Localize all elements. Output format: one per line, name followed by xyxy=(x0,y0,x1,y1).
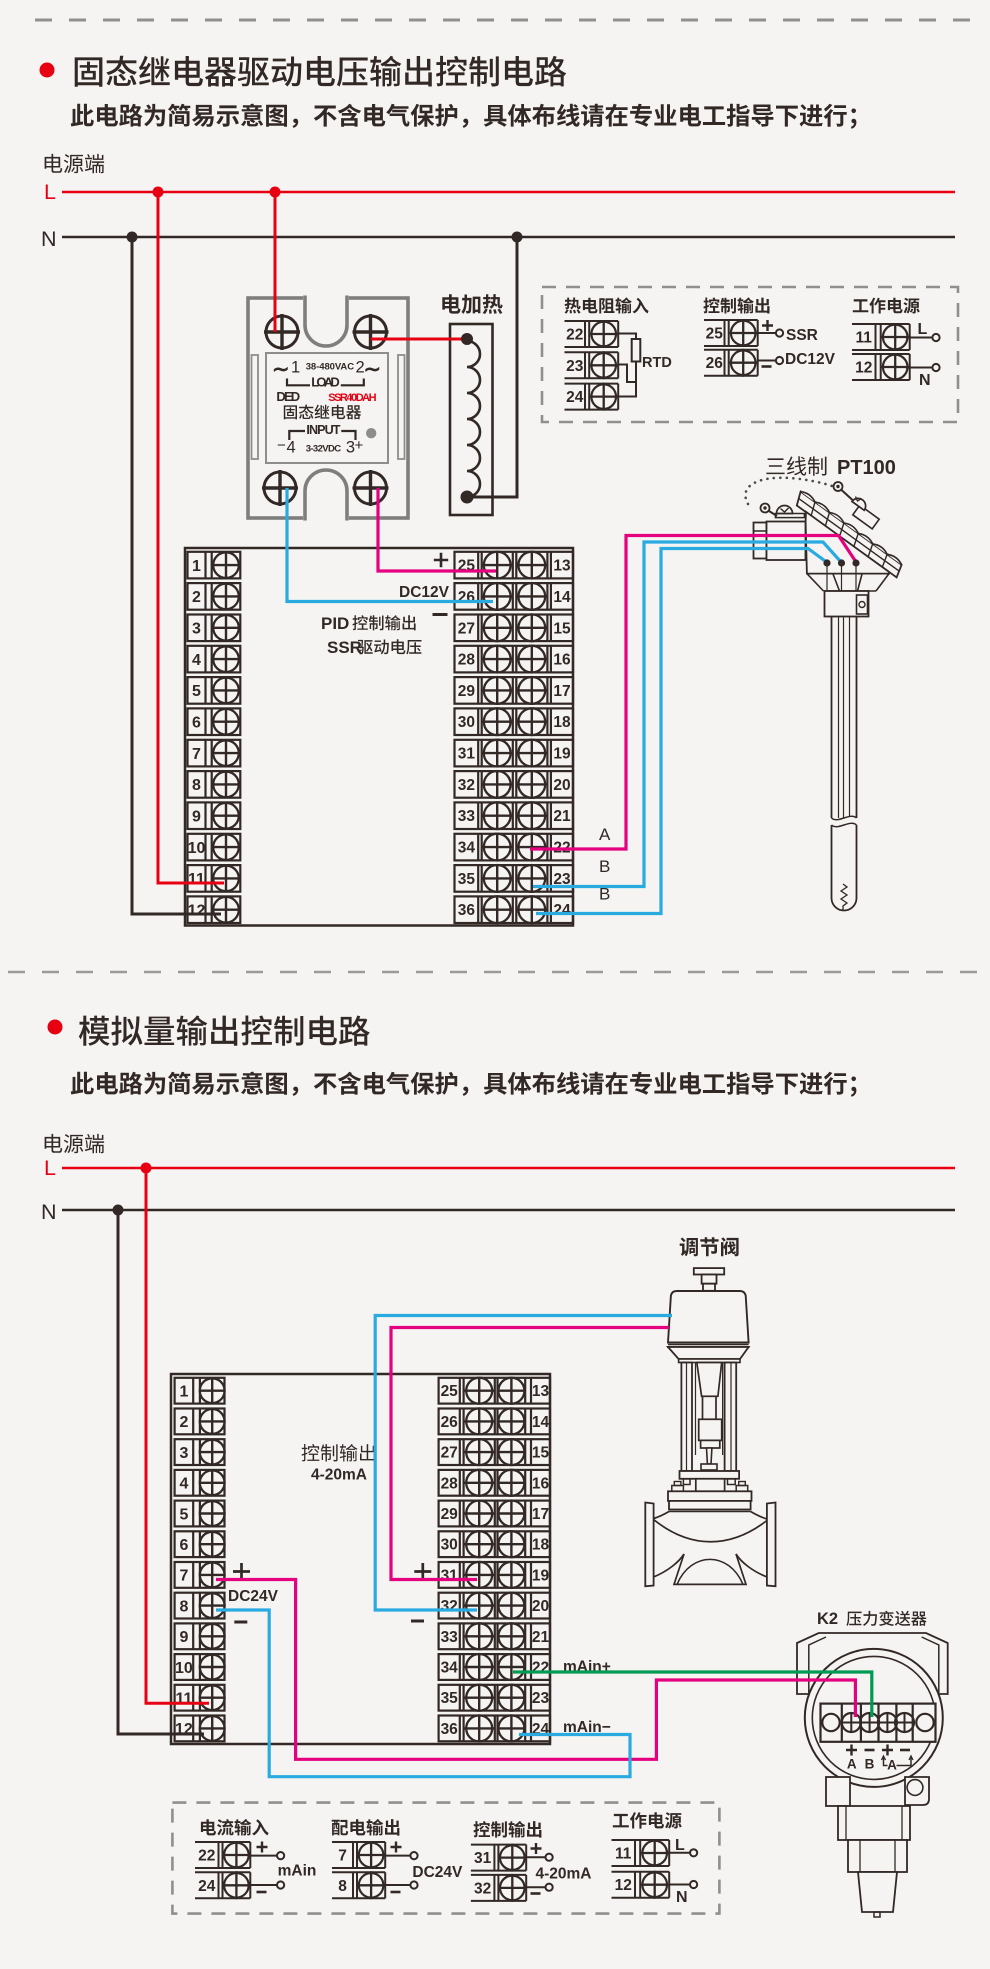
svg-text:19: 19 xyxy=(553,746,571,763)
svg-text:12: 12 xyxy=(615,1877,632,1894)
svg-text:22: 22 xyxy=(566,327,583,344)
svg-text:36: 36 xyxy=(441,1721,459,1738)
svg-text:N: N xyxy=(41,227,57,251)
svg-text:10: 10 xyxy=(175,1660,193,1677)
svg-text:PT100: PT100 xyxy=(837,457,896,479)
svg-text:23: 23 xyxy=(532,1690,550,1707)
svg-text:26: 26 xyxy=(706,355,724,372)
svg-text:11: 11 xyxy=(856,330,873,347)
svg-text:LOAD: LOAD xyxy=(311,375,340,390)
svg-text:25: 25 xyxy=(441,1383,459,1400)
svg-text:A: A xyxy=(599,825,611,844)
svg-text:11: 11 xyxy=(615,1846,632,1863)
svg-text:L: L xyxy=(44,1156,56,1180)
svg-text:DC12V: DC12V xyxy=(785,351,836,368)
svg-text:33: 33 xyxy=(458,808,476,825)
svg-text:L: L xyxy=(675,1837,685,1854)
svg-text:1: 1 xyxy=(291,359,300,377)
svg-text:6: 6 xyxy=(192,715,201,732)
svg-text:DC24V: DC24V xyxy=(228,1588,279,1605)
svg-text:4: 4 xyxy=(192,652,201,669)
svg-text:25: 25 xyxy=(706,326,724,343)
svg-text:24: 24 xyxy=(566,389,584,406)
svg-text:30: 30 xyxy=(441,1537,458,1554)
svg-text:B: B xyxy=(865,1757,875,1772)
svg-text:38-480VAC: 38-480VAC xyxy=(306,362,355,373)
svg-text:3-32VDC: 3-32VDC xyxy=(306,444,342,455)
svg-text:2: 2 xyxy=(179,1414,188,1431)
svg-text:14: 14 xyxy=(532,1414,550,1431)
svg-text:7: 7 xyxy=(192,746,201,763)
svg-text:32: 32 xyxy=(441,1598,458,1615)
svg-text:36: 36 xyxy=(458,902,476,919)
svg-text:2: 2 xyxy=(192,589,201,606)
svg-text:28: 28 xyxy=(441,1475,459,1492)
svg-text:16: 16 xyxy=(532,1475,550,1492)
svg-text:4: 4 xyxy=(287,438,296,456)
svg-text:4-20mA: 4-20mA xyxy=(536,1865,592,1882)
svg-text:34: 34 xyxy=(458,840,476,857)
svg-text:−: − xyxy=(277,437,286,454)
svg-text:A: A xyxy=(887,1758,897,1773)
svg-text:∼: ∼ xyxy=(272,358,290,381)
svg-text:B: B xyxy=(599,885,610,904)
svg-text:32: 32 xyxy=(474,1880,491,1897)
svg-text:18: 18 xyxy=(553,714,571,731)
svg-text:16: 16 xyxy=(553,652,571,669)
svg-text:N: N xyxy=(41,1200,57,1224)
svg-text:9: 9 xyxy=(179,1629,188,1646)
svg-text:29: 29 xyxy=(441,1506,459,1523)
svg-text:21: 21 xyxy=(532,1629,550,1646)
svg-text:34: 34 xyxy=(441,1660,459,1677)
svg-text:INPUT: INPUT xyxy=(306,423,340,437)
svg-text:24: 24 xyxy=(198,1878,216,1895)
svg-text:29: 29 xyxy=(458,683,476,700)
svg-text:DC12V: DC12V xyxy=(399,584,450,601)
svg-text:RTD: RTD xyxy=(642,355,672,371)
svg-text:B: B xyxy=(599,857,610,876)
svg-text:9: 9 xyxy=(192,809,201,826)
svg-text:5: 5 xyxy=(192,683,201,700)
svg-text:19: 19 xyxy=(532,1567,550,1584)
svg-text:22: 22 xyxy=(532,1660,549,1677)
svg-text:14: 14 xyxy=(553,589,571,606)
svg-text:22: 22 xyxy=(198,1848,215,1865)
svg-text:mAin: mAin xyxy=(278,1862,317,1879)
svg-text:32: 32 xyxy=(458,777,475,794)
svg-text:17: 17 xyxy=(532,1506,549,1523)
svg-text:23: 23 xyxy=(566,358,584,375)
svg-text:30: 30 xyxy=(458,714,475,731)
svg-text:DED: DED xyxy=(276,389,300,404)
svg-text:28: 28 xyxy=(458,652,476,669)
svg-text:15: 15 xyxy=(553,620,571,637)
svg-text:K2: K2 xyxy=(817,1610,838,1628)
svg-text:12: 12 xyxy=(175,1721,193,1738)
svg-text:20: 20 xyxy=(553,777,570,794)
svg-text:27: 27 xyxy=(458,620,475,637)
svg-text:8: 8 xyxy=(179,1598,188,1615)
svg-text:35: 35 xyxy=(458,871,476,888)
svg-text:12: 12 xyxy=(188,903,206,920)
svg-text:31: 31 xyxy=(458,746,476,763)
svg-text:3: 3 xyxy=(192,621,201,638)
svg-text:+: + xyxy=(355,437,364,454)
svg-text:SSR: SSR xyxy=(786,327,818,344)
svg-text:31: 31 xyxy=(441,1567,459,1584)
svg-text:26: 26 xyxy=(441,1414,459,1431)
svg-text:27: 27 xyxy=(441,1445,458,1462)
svg-text:13: 13 xyxy=(553,558,571,575)
svg-text:1: 1 xyxy=(179,1384,188,1401)
svg-text:31: 31 xyxy=(474,1850,492,1867)
svg-text:∼: ∼ xyxy=(364,358,382,381)
svg-text:4-20mA: 4-20mA xyxy=(311,1467,367,1484)
svg-text:26: 26 xyxy=(458,589,476,606)
svg-text:1: 1 xyxy=(192,558,201,575)
svg-text:17: 17 xyxy=(553,683,570,700)
svg-text:11: 11 xyxy=(188,871,205,888)
svg-text:10: 10 xyxy=(188,840,206,857)
svg-text:A: A xyxy=(847,1757,857,1772)
svg-text:N: N xyxy=(676,1889,688,1906)
svg-text:21: 21 xyxy=(553,808,571,825)
svg-text:7: 7 xyxy=(179,1568,188,1585)
svg-text:N: N xyxy=(919,372,931,389)
svg-text:SSR: SSR xyxy=(327,638,362,657)
svg-text:4: 4 xyxy=(179,1476,188,1493)
svg-text:L: L xyxy=(44,180,56,204)
svg-text:18: 18 xyxy=(532,1537,550,1554)
svg-text:3: 3 xyxy=(179,1445,188,1462)
svg-text:12: 12 xyxy=(855,360,872,377)
svg-text:24: 24 xyxy=(553,902,571,919)
svg-text:8: 8 xyxy=(338,1878,347,1895)
svg-text:DC24V: DC24V xyxy=(412,1864,463,1881)
svg-text:33: 33 xyxy=(441,1629,459,1646)
svg-text:11: 11 xyxy=(175,1691,192,1708)
svg-text:5: 5 xyxy=(179,1506,188,1523)
svg-text:8: 8 xyxy=(192,777,201,794)
svg-text:15: 15 xyxy=(532,1445,550,1462)
svg-text:20: 20 xyxy=(532,1598,549,1615)
svg-text:SSR40DAH: SSR40DAH xyxy=(328,392,376,404)
svg-text:13: 13 xyxy=(532,1383,550,1400)
svg-text:PID: PID xyxy=(321,614,349,633)
svg-text:7: 7 xyxy=(338,1848,347,1865)
svg-text:6: 6 xyxy=(179,1537,188,1554)
svg-text:35: 35 xyxy=(441,1690,459,1707)
svg-text:L: L xyxy=(918,321,928,338)
